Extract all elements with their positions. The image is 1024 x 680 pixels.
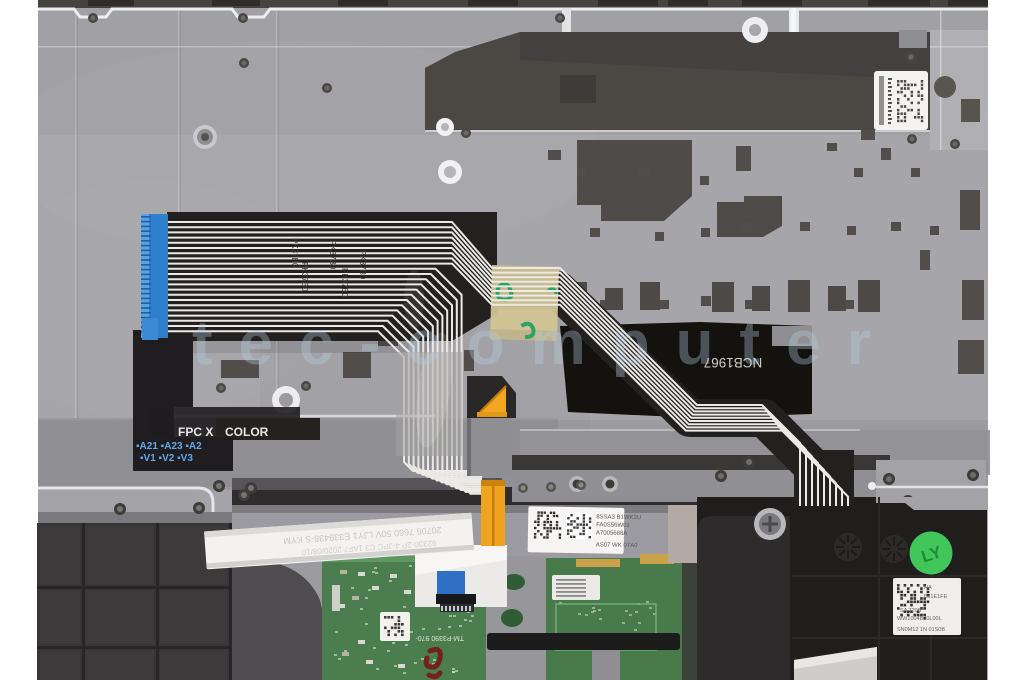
svg-text:SN0M12 1N 01S0B: SN0M12 1N 01S0B <box>897 627 945 633</box>
svg-text:PK37B0: PK37B0 <box>358 250 367 280</box>
svg-text:FPC X: FPC X <box>178 425 213 439</box>
svg-text:AS07 WK 07A0: AS07 WK 07A0 <box>596 542 638 549</box>
svg-text:TM-P3390 970-: TM-P3390 970- <box>415 634 464 641</box>
svg-text:A7005688A: A7005688A <box>596 530 627 537</box>
svg-text:PK37B0: PK37B0 <box>290 238 299 268</box>
svg-text:▪A21 ▪A23 ▪A2: ▪A21 ▪A23 ▪A2 <box>136 441 202 452</box>
svg-text:PK37B0: PK37B0 <box>328 240 337 270</box>
svg-text:8SSA3 B1WK2U: 8SSA3 B1WK2U <box>596 514 641 521</box>
svg-text:HA: HA <box>924 585 932 591</box>
svg-text:tec-computer: tec-computer <box>192 309 897 378</box>
svg-text:FA0S56W01: FA0S56W01 <box>596 522 630 529</box>
svg-text:PK37B0: PK37B0 <box>300 262 309 292</box>
svg-text:COLOR: COLOR <box>225 425 269 439</box>
svg-text:SA 720B: SA 720B <box>900 608 922 614</box>
svg-text:BJ1E1FE: BJ1E1FE <box>924 594 948 600</box>
svg-text:PK37B0: PK37B0 <box>340 268 349 298</box>
svg-text:▪V1 ▪V2 ▪V3: ▪V1 ▪V2 ▪V3 <box>140 453 193 464</box>
svg-text:WW1004B00L00L: WW1004B00L00L <box>897 616 942 622</box>
